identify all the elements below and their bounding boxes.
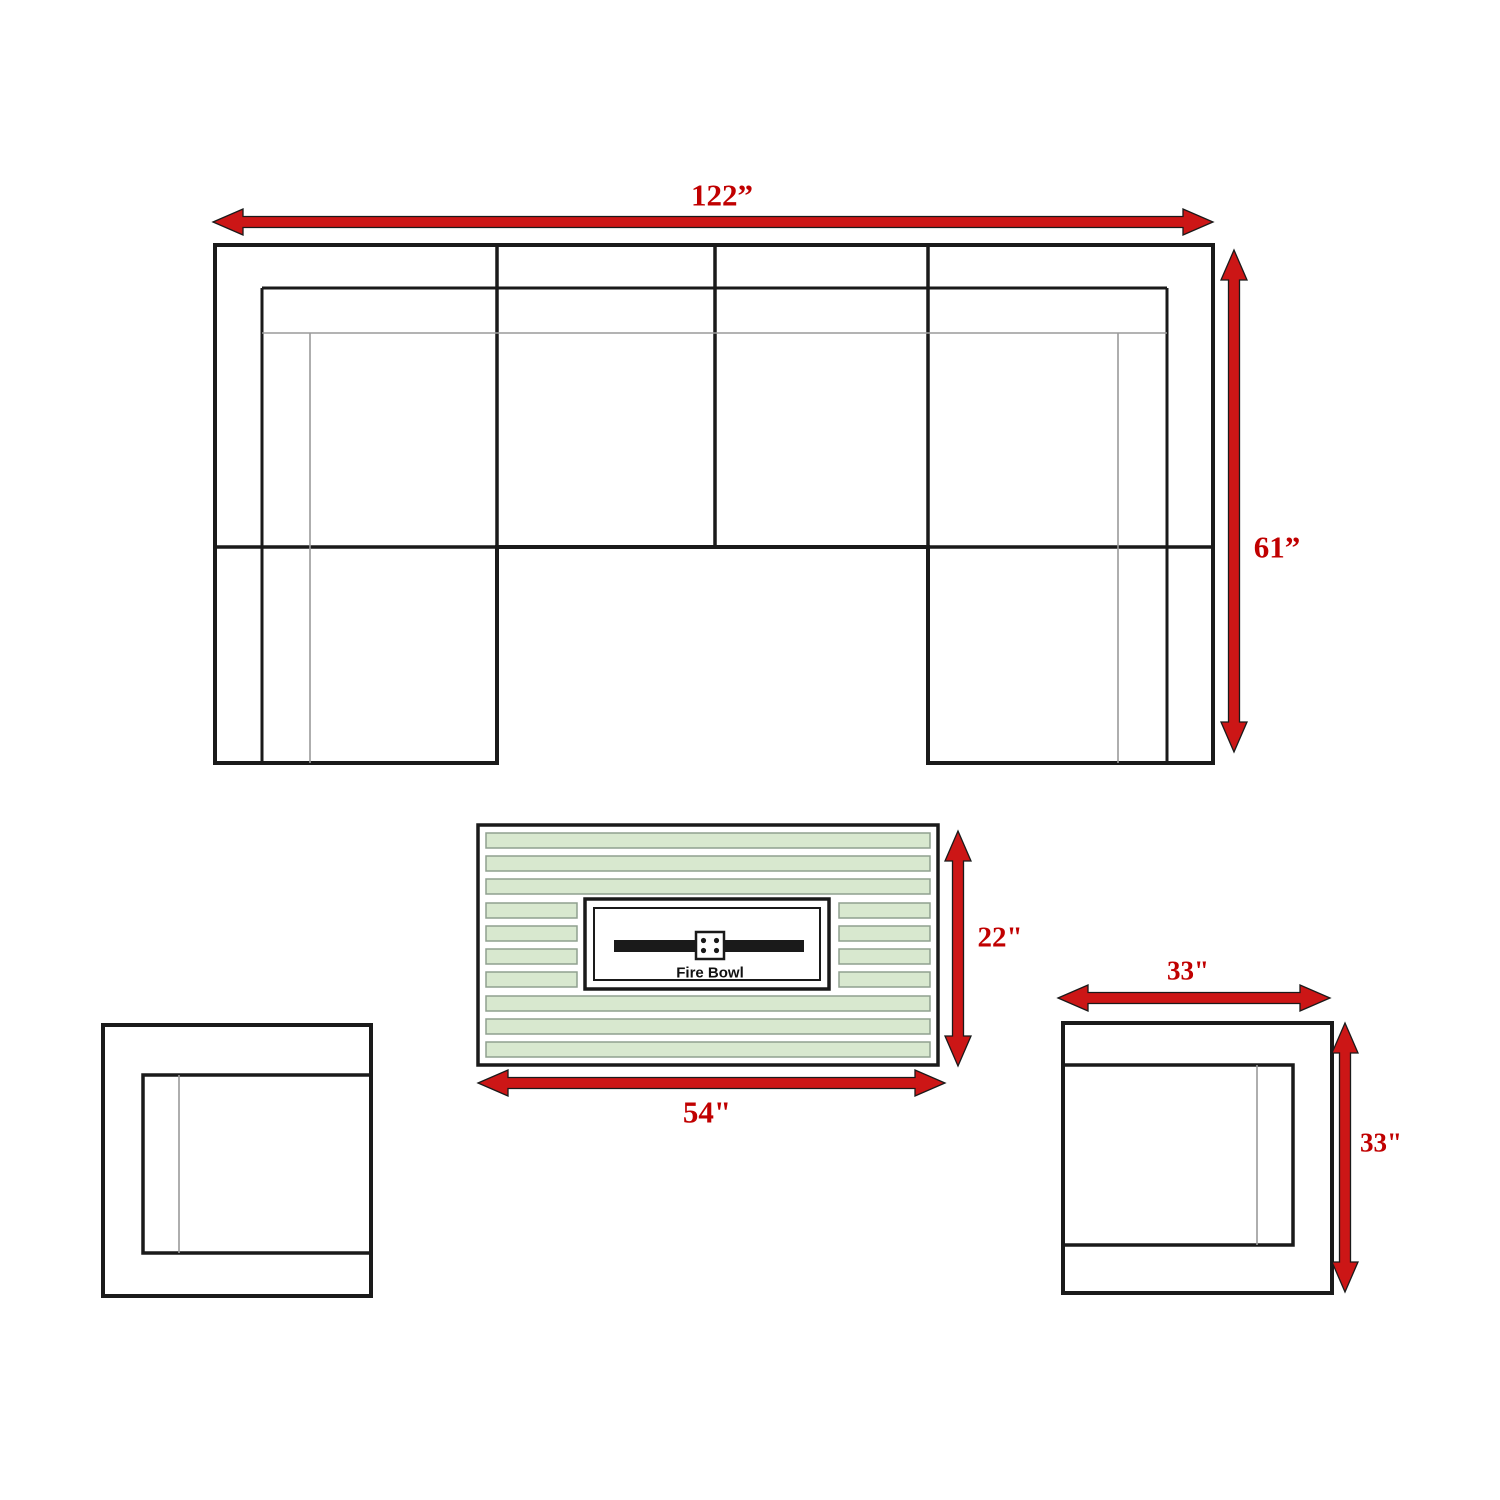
table-slat bbox=[486, 1019, 930, 1034]
sofa-depth-arrow bbox=[1221, 250, 1247, 752]
sofa-width-arrow bbox=[213, 209, 1213, 235]
diagram-linework bbox=[0, 0, 1500, 1500]
table-slat bbox=[486, 996, 930, 1011]
fire-table-height-label: 22" bbox=[977, 924, 1022, 953]
sectional-sofa bbox=[215, 245, 1213, 763]
table-slat-short bbox=[486, 972, 577, 987]
chair-left-seat bbox=[143, 1075, 371, 1253]
sofa-width-label: 122” bbox=[691, 180, 753, 211]
chair-right-seat bbox=[1063, 1065, 1293, 1245]
fire-table-height-arrow bbox=[945, 831, 971, 1066]
fire-table-width-label: 54" bbox=[683, 1097, 731, 1128]
chair-width-label: 33" bbox=[1167, 958, 1209, 985]
igniter-dot bbox=[714, 938, 719, 943]
chair-width-arrow bbox=[1058, 985, 1330, 1011]
table-slat-short bbox=[839, 949, 930, 964]
table-slat-short bbox=[486, 926, 577, 941]
corner-chair-left bbox=[103, 1025, 371, 1296]
table-slat bbox=[486, 1042, 930, 1057]
chair-height-arrow bbox=[1332, 1023, 1358, 1292]
table-slat bbox=[486, 833, 930, 848]
chair-height-label: 33" bbox=[1360, 1130, 1402, 1157]
table-slat-short bbox=[486, 903, 577, 918]
table-slat-short bbox=[839, 903, 930, 918]
fire-pit-table bbox=[478, 825, 938, 1065]
table-slat bbox=[486, 856, 930, 871]
table-slat-short bbox=[486, 949, 577, 964]
table-slat-short bbox=[839, 972, 930, 987]
table-slat-short bbox=[839, 926, 930, 941]
igniter-dot bbox=[701, 948, 706, 953]
igniter-dot bbox=[714, 948, 719, 953]
sofa-depth-label: 61” bbox=[1254, 532, 1301, 563]
table-slat bbox=[486, 879, 930, 894]
igniter-dot bbox=[701, 938, 706, 943]
fire-bowl-label: Fire Bowl bbox=[676, 965, 744, 982]
fire-bowl-igniter bbox=[696, 932, 724, 959]
corner-chair-right bbox=[1063, 1023, 1332, 1293]
fire-table-width-arrow bbox=[478, 1070, 945, 1096]
furniture-dimension-diagram: 122” 61” 22" 54" 33" 33" Fire Bowl bbox=[0, 0, 1500, 1500]
